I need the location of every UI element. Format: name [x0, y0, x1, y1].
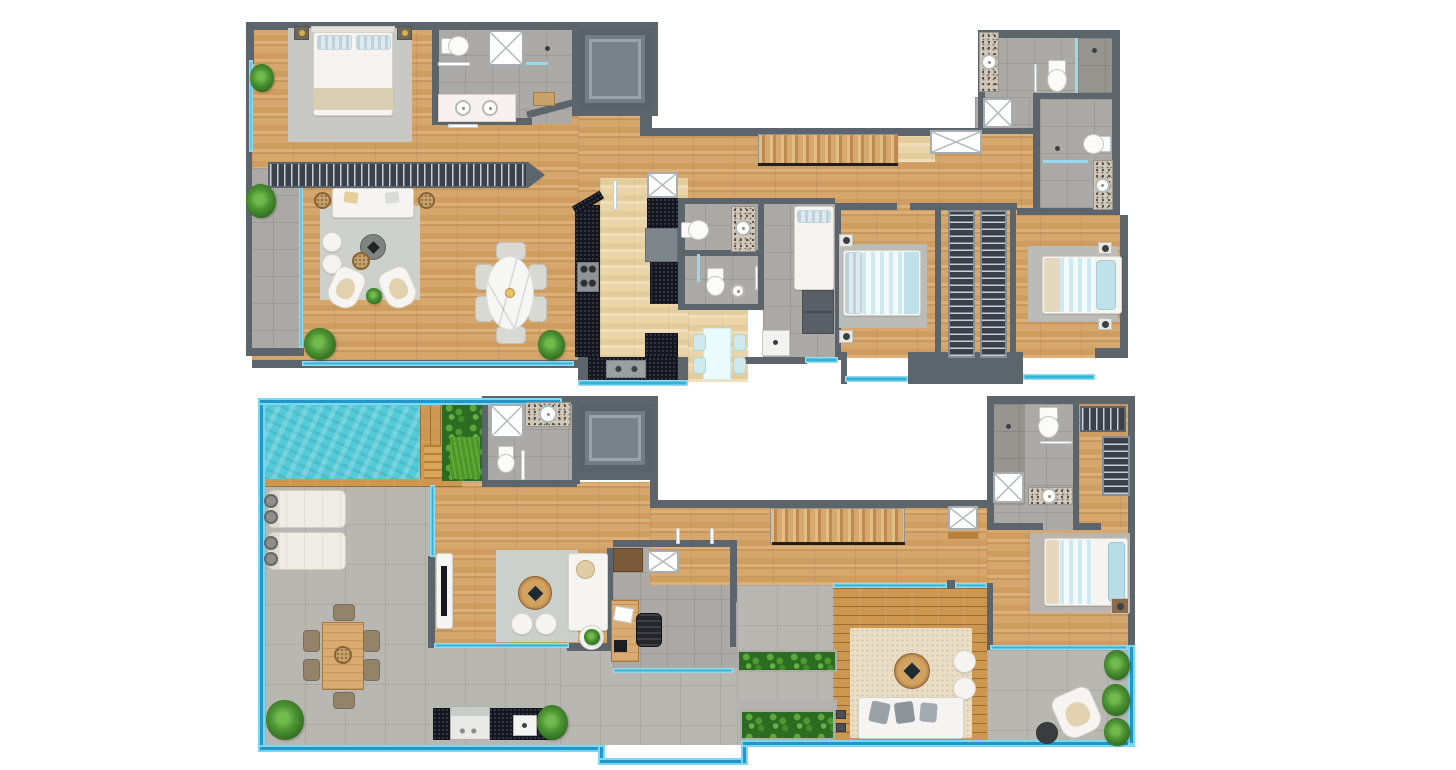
cabinet [802, 290, 834, 334]
terrace-railing [258, 745, 605, 752]
closet-rail [980, 210, 1007, 358]
balcony-glass [845, 376, 908, 382]
plant [1102, 684, 1130, 716]
fridge [645, 228, 678, 262]
terrace-railing [258, 398, 265, 752]
door-leaf [676, 528, 680, 544]
toilet [441, 36, 469, 56]
towel-rack [438, 62, 470, 66]
wall [482, 480, 577, 487]
door-leaf [613, 180, 617, 210]
bed-fold [1044, 258, 1060, 312]
toilet [1083, 134, 1111, 154]
shower-tray [488, 30, 524, 66]
wall [572, 472, 658, 480]
closet-rail [1102, 436, 1130, 496]
skylight [647, 550, 679, 573]
study-glass [613, 668, 733, 673]
outdoor-chair [363, 630, 380, 652]
nightstand [294, 26, 309, 40]
wall [1033, 93, 1112, 99]
kitchen-counter-right [650, 262, 678, 304]
office-chair [636, 613, 662, 647]
toilet [496, 446, 516, 473]
plant [246, 184, 276, 218]
speaker [836, 723, 846, 732]
wall [987, 396, 1135, 404]
shower-glass [1075, 38, 1078, 93]
family-room-glass [430, 485, 435, 557]
sofa-cushion [343, 191, 358, 204]
kitchen-counter-right [647, 198, 678, 228]
wall [685, 304, 758, 310]
pillow [797, 210, 831, 223]
wall [246, 348, 304, 356]
skylight [948, 506, 978, 530]
hall-deck-glass [833, 583, 947, 588]
door-leaf [448, 124, 478, 128]
duvet [1060, 258, 1094, 312]
outdoor-chair [333, 692, 355, 709]
shower-glass [1043, 160, 1088, 163]
planter [740, 710, 835, 740]
plant [266, 700, 304, 740]
wall [987, 523, 1043, 530]
plant [584, 629, 600, 645]
toilet [705, 268, 726, 296]
utility-glass [805, 357, 838, 363]
wardrobe-rail-end [528, 162, 545, 188]
nightstand [839, 330, 853, 343]
wardrobe-rail [268, 162, 528, 188]
terrace-glass [299, 170, 303, 348]
skylight [647, 172, 678, 198]
plant [1104, 718, 1130, 746]
nightstand [397, 26, 412, 40]
terrace-railing [741, 745, 748, 765]
side-table-dark [1036, 722, 1058, 744]
wall [975, 128, 1040, 134]
wall [947, 580, 955, 589]
towel-rack [1034, 64, 1037, 92]
breakfast-chair [693, 357, 706, 374]
pillow [356, 35, 391, 50]
duvet [1060, 540, 1092, 604]
nightstand [1098, 242, 1112, 254]
shower-glass [697, 254, 700, 282]
breakfast-chair [733, 334, 746, 351]
floorplan-canvas [0, 0, 1456, 770]
staircase-upper [758, 134, 898, 166]
wall [935, 208, 941, 358]
wall [978, 30, 1120, 38]
wall [835, 203, 897, 210]
bedroom-glass [990, 645, 1128, 650]
plant [250, 64, 274, 92]
skylight [930, 130, 982, 154]
wall [482, 396, 488, 487]
side-table [314, 192, 331, 209]
table-centerpiece [505, 288, 515, 298]
sofa-cushion [384, 191, 399, 203]
elevator-shaft [578, 404, 652, 472]
wall [1073, 404, 1079, 530]
shelf [613, 548, 643, 572]
closet-rail [948, 210, 975, 358]
stair-nosing [758, 163, 898, 166]
sun-lounger [268, 490, 346, 528]
wall [1112, 30, 1120, 215]
terrace-railing [741, 740, 1135, 747]
bed-fold [1046, 540, 1059, 604]
basin [735, 220, 751, 236]
sofa-cushion [919, 702, 938, 722]
floor-drain [545, 46, 550, 51]
side-table [418, 192, 435, 209]
living-room-glass [302, 361, 574, 366]
bed-bolster [1096, 260, 1116, 310]
bed-bolster [1108, 542, 1125, 602]
toilet [1037, 407, 1060, 438]
family-room-glass [434, 643, 569, 648]
duvet [862, 252, 904, 314]
staircase-lower [770, 508, 905, 544]
tv [441, 566, 447, 616]
wall [730, 583, 736, 647]
wall [650, 500, 987, 508]
vanity-counter [438, 94, 516, 122]
shower-tray [993, 472, 1024, 503]
basin [1095, 178, 1110, 193]
pillow [317, 35, 352, 50]
outdoor-chair [363, 659, 380, 681]
closet-rail [1080, 406, 1126, 432]
wall [987, 396, 994, 530]
elevator-shaft [578, 28, 652, 110]
bed-throw [904, 252, 919, 314]
basin [455, 100, 471, 116]
outdoor-chair [333, 604, 355, 621]
wall [745, 357, 807, 364]
pouf [322, 232, 342, 252]
wall [1010, 208, 1016, 358]
duvet-fold [313, 88, 393, 110]
plant [366, 288, 382, 304]
breakfast-chair [733, 357, 746, 374]
wall [678, 198, 685, 310]
wall [1079, 523, 1101, 530]
shower-glass [526, 62, 548, 65]
plant [1104, 650, 1130, 680]
terrace-railing [598, 758, 748, 765]
sun-hat [576, 560, 595, 579]
wall [758, 198, 764, 310]
toilet [681, 220, 709, 240]
towel-rack [1040, 441, 1072, 444]
planter [737, 650, 837, 672]
wall [613, 540, 737, 547]
toilet [1046, 60, 1068, 92]
floor-drain [1055, 146, 1060, 151]
shower-2-dark-tile [1078, 38, 1112, 93]
towel-rack [755, 266, 758, 290]
wall [1033, 99, 1040, 215]
wall [640, 116, 652, 136]
swimming-pool [263, 403, 420, 479]
nightstand [1098, 318, 1112, 330]
planter-edge [737, 700, 837, 710]
stair-nosing [772, 542, 905, 545]
laptop [613, 605, 634, 623]
balcony-glass [1023, 374, 1095, 380]
shower-tray [490, 404, 524, 438]
door-leaf [710, 528, 714, 544]
basin [981, 54, 997, 70]
basin [731, 284, 745, 298]
bbq-sink-drain [522, 723, 527, 728]
breakfast-table [703, 328, 731, 380]
nightstand [839, 234, 853, 247]
kitchen-counter-corner [645, 333, 678, 359]
pouf [511, 613, 533, 635]
wall [678, 198, 758, 204]
wall [428, 556, 435, 648]
wall [910, 203, 1017, 210]
nightstand [1111, 598, 1129, 614]
shower-tray [983, 98, 1013, 128]
bench [533, 92, 555, 106]
coffee-table-small [352, 252, 370, 270]
pouf [953, 650, 976, 673]
breakfast-chair [693, 334, 706, 351]
laundry-drain [773, 340, 778, 345]
floor-drain [1006, 424, 1011, 429]
desk-pad [614, 640, 627, 652]
sofa-cushion [894, 701, 916, 724]
outdoor-chair [303, 659, 320, 681]
double-sink [606, 360, 646, 378]
table-centerpiece [334, 646, 352, 664]
sun-lounger [268, 532, 346, 570]
speaker [836, 710, 846, 719]
kitchen-glass [578, 380, 688, 386]
outdoor-chair [303, 630, 320, 652]
stove [577, 262, 599, 292]
plant [304, 328, 336, 360]
wall [758, 198, 835, 204]
pouf [535, 613, 557, 635]
hall-deck-glass [955, 583, 987, 588]
basin [539, 405, 557, 423]
wood-ledge [948, 532, 978, 539]
basin [1041, 488, 1057, 504]
bbq-grill [450, 706, 490, 740]
door-leaf [521, 450, 525, 480]
plant [537, 705, 568, 740]
wall [987, 583, 993, 650]
plant [538, 330, 565, 360]
floor-drain [1092, 48, 1097, 53]
pillow [845, 252, 862, 314]
basin [482, 100, 498, 116]
grass-patch [450, 437, 480, 479]
